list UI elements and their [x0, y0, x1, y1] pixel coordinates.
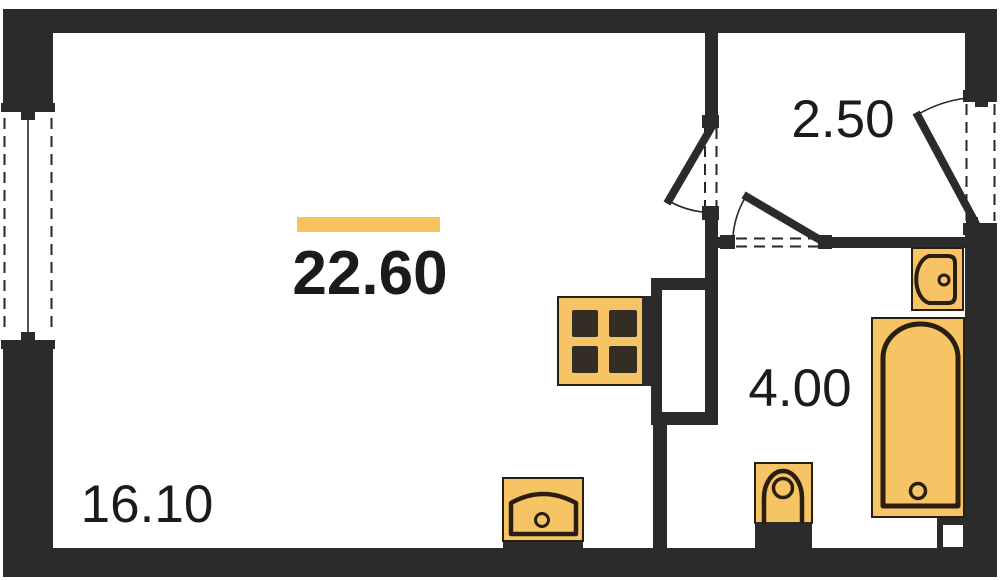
stove-burner	[609, 346, 637, 373]
door-jamb	[702, 206, 719, 220]
window-nub-bottom	[21, 332, 35, 341]
top-wall	[3, 9, 997, 33]
shaft-interior	[662, 290, 705, 412]
hall-bathroom-wall-right	[832, 237, 965, 248]
right-wall-lower	[965, 235, 997, 548]
kitchen-sink-icon	[503, 478, 583, 550]
hall-partition-upper	[705, 33, 718, 115]
door-swing-arc	[917, 98, 967, 115]
shaft-wall	[705, 290, 718, 425]
right-wall-upper	[965, 9, 997, 93]
stove-edge	[642, 296, 653, 386]
stove-burner	[609, 310, 637, 337]
total-area-callout: 22.60	[292, 217, 447, 308]
bathtub-icon	[872, 318, 964, 517]
room-area-label-bathroom: 4.00	[748, 359, 851, 418]
room-area-label-hall: 2.50	[791, 90, 894, 149]
door-swing-arc	[669, 201, 703, 212]
toilet-tank	[755, 522, 812, 548]
duct-interior	[943, 525, 963, 547]
door-swing-arc	[733, 198, 745, 237]
floor-plan-canvas: 22.60 16.10 2.50 4.00	[0, 0, 1000, 580]
floor-plan: 22.60 16.10 2.50 4.00	[0, 0, 1000, 580]
left-wall-upper	[3, 9, 53, 103]
interior-door-icon	[669, 115, 719, 220]
stove-icon	[558, 296, 653, 386]
entrance-door-icon	[917, 90, 997, 235]
room-area-label-living: 16.10	[81, 475, 214, 534]
window-sill-bottom	[1, 340, 55, 349]
left-wall-lower	[3, 349, 53, 577]
door-jamb	[720, 235, 735, 249]
shaft-wall	[655, 412, 718, 425]
total-area-label: 22.60	[292, 239, 447, 308]
ventilation-shaft-icon	[651, 278, 718, 425]
bottom-wall	[3, 548, 997, 577]
stove-burner	[572, 310, 598, 337]
bathroom-partition	[653, 412, 667, 548]
window-icon	[1, 103, 55, 349]
door-leaf	[747, 197, 822, 241]
toilet-icon	[755, 463, 812, 548]
stove-burner	[572, 346, 598, 373]
window-sill-top	[1, 103, 55, 112]
washbasin-icon	[912, 248, 963, 310]
door-jamb-nub	[975, 100, 988, 107]
hall-bathroom-wall-left	[705, 237, 722, 248]
sink-body	[503, 478, 583, 541]
bathroom-door-icon	[720, 197, 832, 249]
total-area-accent-bar	[297, 217, 440, 232]
window-nub-top	[21, 112, 35, 120]
corner-duct-icon	[937, 517, 967, 550]
